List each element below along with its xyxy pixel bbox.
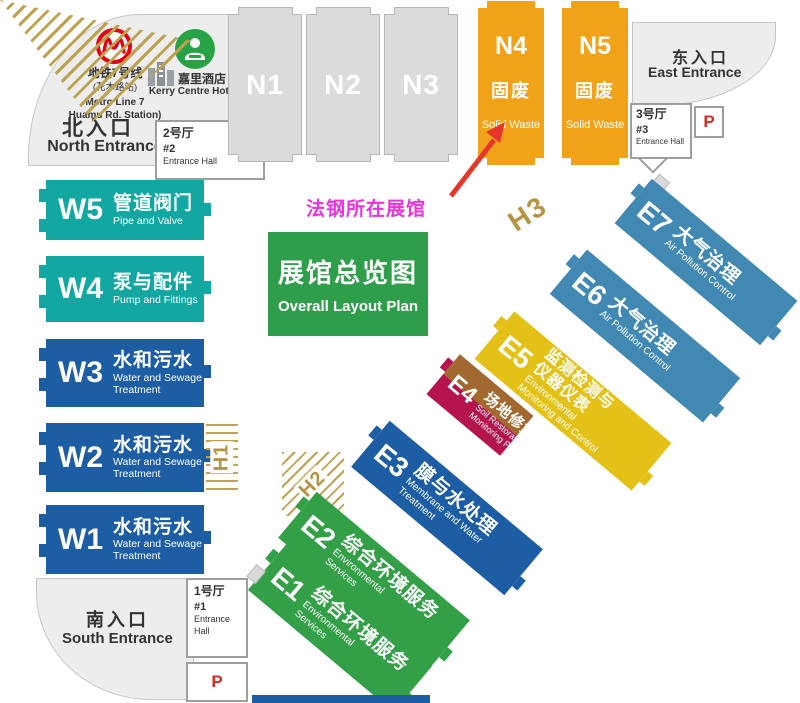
hall-w1-en2: Treatment xyxy=(113,550,202,562)
hall-n4-label: N4 xyxy=(495,32,527,61)
hall-w1-en1: Water and Sewage xyxy=(113,538,202,550)
hall-n4-cn: 固废 xyxy=(491,77,531,103)
hall-w5: W5 管道阀门 Pipe and Valve xyxy=(46,180,204,240)
hall-w4-text: 泵与配件 Pump and Fittings xyxy=(113,272,198,306)
parking-badge-south: P xyxy=(186,662,248,702)
hall-w3-text: 水和污水 Water and Sewage Treatment xyxy=(113,350,202,396)
entrance-hall-1-box: 1号厅 #1 Entrance Hall xyxy=(186,578,248,658)
entrance-hall-3-cn: 3号厅 xyxy=(636,107,686,123)
entrance-hall-1-no: #1 xyxy=(194,600,240,614)
hall-n5: N5 固废 Solid Waste xyxy=(562,8,628,158)
hall-w4-en1: Pump and Fittings xyxy=(113,294,198,306)
hall-w2: W2 水和污水 Water and Sewage Treatment xyxy=(46,423,204,492)
hall-e3-text: 膜与水处理 Membrane and Water Treatment xyxy=(396,460,501,558)
bottom-cut-bar xyxy=(252,695,430,703)
hall-w4-label: W4 xyxy=(58,272,103,306)
hall-w2-label: W2 xyxy=(58,441,103,475)
h1-zone: H1 xyxy=(206,424,238,490)
south-entrance-label-en: South Entrance xyxy=(62,630,173,647)
hall-w5-en1: Pipe and Valve xyxy=(113,215,193,227)
hall-n5-en: Solid Waste xyxy=(566,119,624,131)
hall-w3-en1: Water and Sewage xyxy=(113,372,202,384)
hall-w1: W1 水和污水 Water and Sewage Treatment xyxy=(46,505,204,574)
expo-overall-layout-map: 地铁7号线 (花木路站) Metro Line 7 Huamu Rd. Stat… xyxy=(0,0,800,703)
hall-w5-cn: 管道阀门 xyxy=(113,193,193,215)
parking-letter-south: P xyxy=(211,672,222,692)
hall-n1-label: N1 xyxy=(246,69,284,101)
hall-n2: N2 xyxy=(306,14,380,155)
hall-e7-text: 大气治理 Air Pollution Control xyxy=(662,221,751,303)
hall-w3-label: W3 xyxy=(58,356,103,390)
hall-n4: N4 固废 Solid Waste xyxy=(478,8,544,158)
hall-w1-label: W1 xyxy=(58,523,103,557)
hall-w2-en1: Water and Sewage xyxy=(113,456,202,468)
entrance-hall-1-en: Entrance Hall xyxy=(194,614,240,637)
north-entrance-label-en: North Entrance xyxy=(38,138,172,156)
hall-w4-cn: 泵与配件 xyxy=(113,272,198,294)
parking-letter-east: P xyxy=(703,112,714,132)
hall-n3-label: N3 xyxy=(402,69,440,101)
hall-w3: W3 水和污水 Water and Sewage Treatment xyxy=(46,339,204,407)
east-entrance-label-en: East Entrance xyxy=(648,64,741,80)
overall-layout-title-box: 展馆总览图 Overall Layout Plan xyxy=(268,232,428,336)
hall-w5-text: 管道阀门 Pipe and Valve xyxy=(113,193,193,227)
hall-n5-cn: 固废 xyxy=(575,77,615,103)
parking-badge-east: P xyxy=(694,106,724,138)
entrance-hall-3-en: Entrance Hall xyxy=(636,137,686,147)
hall-w2-en2: Treatment xyxy=(113,468,202,480)
hall-w2-cn: 水和污水 xyxy=(113,435,202,457)
hall-e4-label: E4 xyxy=(442,370,482,410)
entrance-hall-3-no: #3 xyxy=(636,123,686,137)
hall-e6-text: 大气治理 Air Pollution Control xyxy=(597,292,686,374)
south-entrance-label-cn: 南入口 xyxy=(86,606,149,632)
hall-w1-cn: 水和污水 xyxy=(113,517,202,539)
hall-w1-text: 水和污水 Water and Sewage Treatment xyxy=(113,517,202,563)
hall-w2-text: 水和污水 Water and Sewage Treatment xyxy=(113,435,202,481)
hall-w3-en2: Treatment xyxy=(113,384,202,396)
hall-n3: N3 xyxy=(384,14,458,155)
hall-n2-label: N2 xyxy=(324,69,362,101)
entrance-hall-1-cn: 1号厅 xyxy=(194,584,240,600)
hall-w5-label: W5 xyxy=(58,193,103,227)
hall-w4: W4 泵与配件 Pump and Fittings xyxy=(46,256,204,322)
h1-zone-label: H1 xyxy=(210,441,233,473)
entrance-hall-3-box: 3号厅 #3 Entrance Hall xyxy=(630,103,692,159)
annotation-label: 法钢所在展馆 xyxy=(306,194,426,221)
h3-zone-label: H3 xyxy=(502,190,553,239)
hall-w3-cn: 水和污水 xyxy=(113,350,202,372)
hall-n4-en: Solid Waste xyxy=(482,119,540,131)
overall-layout-title-en: Overall Layout Plan xyxy=(278,298,418,315)
hotel-name-cn: 嘉里酒店 xyxy=(178,70,226,87)
hall-n5-label: N5 xyxy=(579,32,611,61)
hall-n1: N1 xyxy=(228,14,302,155)
overall-layout-title-cn: 展馆总览图 xyxy=(278,253,418,290)
